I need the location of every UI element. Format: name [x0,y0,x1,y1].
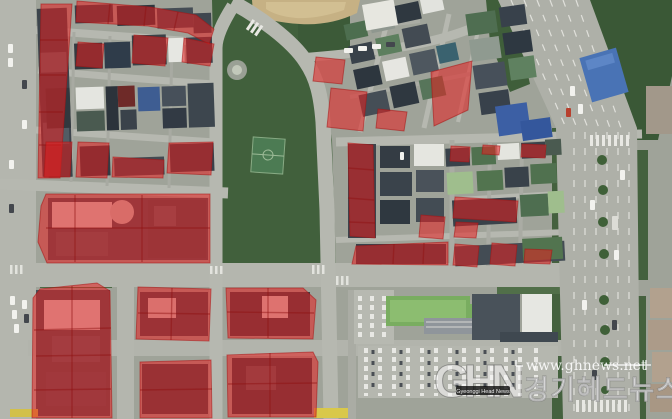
highlight-region-band-south-1 [352,242,448,265]
highlight-region-row-cell-3 [112,157,164,178]
ghn-logo: GHN Gyeonggi Head News [434,355,522,407]
highlight-region-row-cell-2 [76,142,109,178]
highlight-region-cell-mid-north-2 [327,88,367,131]
highlight-region-divider [138,313,210,314]
svg-text:GHN: GHN [434,355,522,407]
highlight-region-divider [227,312,314,313]
ghn-logo-subtext: Gyeonggi Head News [456,389,510,395]
highlight-region-cell-east-3 [454,222,478,238]
highlight-region-divider [393,244,394,264]
highlight-region-cell-east-5 [521,144,546,158]
highlight-region-band-south-4 [524,249,552,264]
highlight-region-row-cell-4 [167,142,213,175]
highlight-region-divider [228,383,317,384]
watermark-url: www.ghnews.net [526,358,647,374]
highlight-region-cell-nw-1 [76,42,104,68]
highlight-region-divider [349,222,375,223]
highlight-region-divider [423,243,424,264]
highlight-region-divider [36,355,111,356]
highlight-region-row-cell-1 [44,142,72,177]
watermark-site-name: 경기헤드뉴스 [524,375,672,405]
satellite-map-image: GHN Gyeonggi Head News www.ghnews.net 경기… [0,0,672,419]
highlight-region-cell-nw-2 [132,35,168,66]
highlight-region-cell-mid-north-1 [313,57,345,84]
watermark: GHN Gyeonggi Head News www.ghnews.net 경기… [434,355,672,407]
highlight-region-cell-mid-north-3 [376,109,407,131]
highlight-region-strip-park-east [348,143,375,238]
highlight-region-cell-east-6 [482,145,500,155]
highlight-region-band-south-3 [490,243,517,266]
highlight-region-cell-east-4 [450,146,470,162]
highlight-region-divider [140,389,212,390]
highlight-region-cell-east-1 [419,215,445,239]
news-photo-frame: GHN Gyeonggi Head News www.ghnews.net 경기… [0,0,672,419]
soccer-field [251,137,285,174]
highlight-region-band-south-2 [453,244,479,267]
highlight-region-cell-east-2 [453,197,518,222]
highlight-region-divider [171,288,172,340]
